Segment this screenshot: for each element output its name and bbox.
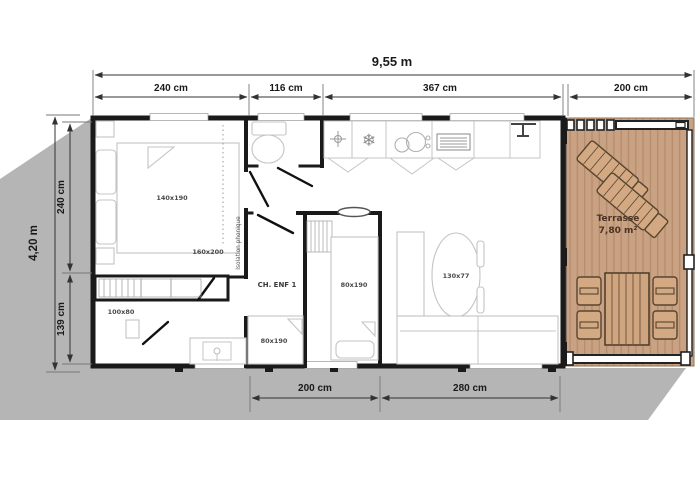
dim-left-2: 139 cm xyxy=(56,302,67,336)
wall-basin xyxy=(338,208,370,217)
bath-shelf xyxy=(126,320,139,338)
dim-bottom-1: 200 cm xyxy=(298,383,332,394)
pillow xyxy=(336,341,374,358)
terrace-chair xyxy=(577,277,601,305)
child-bed-1-label: 80x190 xyxy=(261,337,288,345)
window xyxy=(305,362,357,369)
dining-chair xyxy=(477,287,484,313)
window xyxy=(258,114,304,121)
window xyxy=(350,114,422,121)
dining-chair xyxy=(477,241,484,267)
dim-top-1: 240 cm xyxy=(154,83,188,94)
child-room-label: CH. ENF 1 xyxy=(258,281,297,289)
toilet-tank xyxy=(252,122,286,135)
dim-total-height: 4,20 m xyxy=(28,225,40,261)
sofa-arm xyxy=(397,232,424,316)
dim-top-2: 116 cm xyxy=(269,83,302,94)
window xyxy=(450,114,524,121)
hob-icon xyxy=(437,134,470,150)
pillow xyxy=(96,150,116,194)
dim-total-width: 9,55 m xyxy=(372,54,412,69)
dining-table-label: 130x77 xyxy=(443,272,470,280)
terrace: Terrasse 7,80 m² xyxy=(559,118,694,366)
dim-top-4: 200 cm xyxy=(614,83,648,94)
terrace-label: Terrasse xyxy=(597,214,640,224)
master-bed-label: 140x190 xyxy=(156,194,188,202)
terrace-chair xyxy=(577,311,601,339)
dim-top-3: 367 cm xyxy=(423,83,457,94)
insulation-note: Isolation phonique xyxy=(236,216,242,270)
master-bed-alt-label: 160x200 xyxy=(192,248,224,256)
terrace-chair xyxy=(653,311,677,339)
shower-tray-label: 100x80 xyxy=(108,308,135,316)
floor-plan-svg: Terrasse 7,80 m² xyxy=(0,0,700,500)
nightstand xyxy=(96,248,114,264)
terrace-area-label: 7,80 m² xyxy=(599,226,638,236)
fridge-snowflake-icon: ❄ xyxy=(362,131,376,151)
dim-left-1: 240 cm xyxy=(56,180,67,214)
terrace-chair xyxy=(653,277,677,305)
wc xyxy=(252,122,286,163)
terrace-table xyxy=(605,273,649,345)
child-bed-2-label: 80x190 xyxy=(341,281,368,289)
window xyxy=(150,114,208,121)
toilet-bowl xyxy=(252,135,284,163)
pillow xyxy=(96,200,116,244)
nightstand xyxy=(96,121,114,137)
floor-plan-page: Terrasse 7,80 m² xyxy=(0,0,700,500)
dim-bottom-2: 280 cm xyxy=(453,383,487,394)
